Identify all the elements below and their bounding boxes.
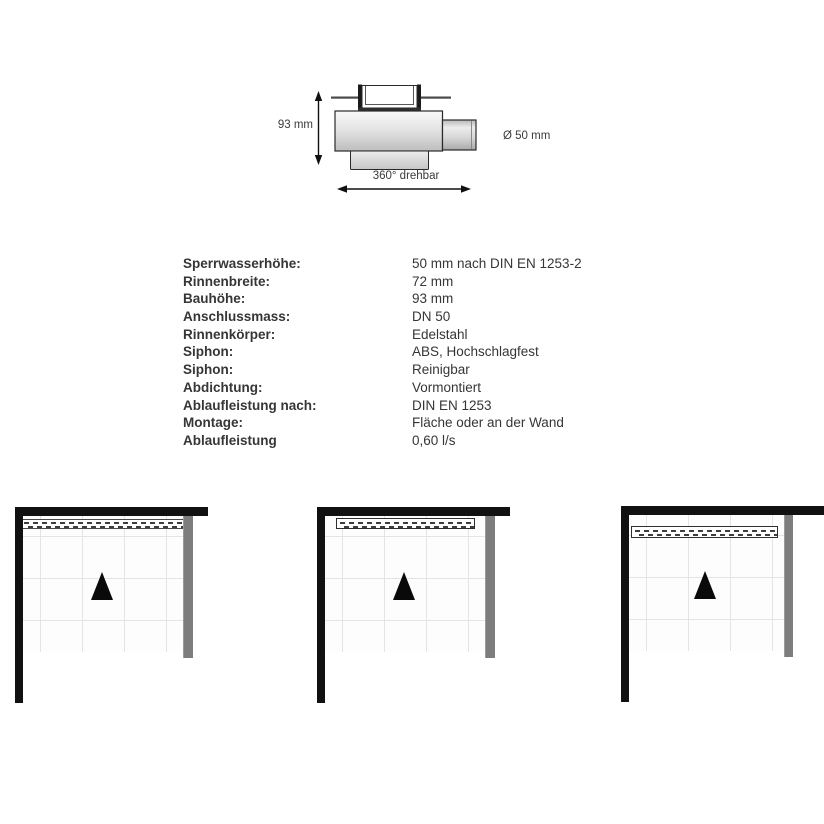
spec-value: Reinigbar	[412, 362, 470, 378]
slope-indicator-triangle	[91, 572, 113, 600]
spec-label: Anschlussmass:	[183, 309, 412, 325]
spec-table: Sperrwasserhöhe: 50 mm nach DIN EN 1253-…	[183, 256, 582, 451]
spec-row: Ablaufleistung nach: DIN EN 1253	[183, 398, 582, 416]
outlet-diameter-label: Ø 50 mm	[503, 130, 550, 142]
wall-left	[621, 506, 629, 702]
spec-value: ABS, Hochschlagfest	[412, 344, 539, 360]
spec-row: Rinnenkörper: Edelstahl	[183, 327, 582, 345]
product-spec-sheet: 93 mm Ø 50 mm 360° drehbar Sperrwasserhö…	[0, 0, 824, 824]
spec-value: DN 50	[412, 309, 450, 325]
spec-value: DIN EN 1253	[412, 398, 492, 414]
spec-label: Bauhöhe:	[183, 291, 412, 307]
spec-label: Rinnenbreite:	[183, 274, 412, 290]
spec-row: Siphon: ABS, Hochschlagfest	[183, 344, 582, 362]
wall-left	[15, 507, 23, 703]
wall-left	[317, 507, 325, 703]
spec-label: Ablaufleistung nach:	[183, 398, 412, 414]
spec-value: 72 mm	[412, 274, 453, 290]
height-dimension-label: 93 mm	[268, 119, 313, 131]
spec-label: Sperrwasserhöhe:	[183, 256, 412, 272]
spec-value: Edelstahl	[412, 327, 468, 343]
spec-value: 50 mm nach DIN EN 1253-2	[412, 256, 582, 272]
spec-row: Rinnenbreite: 72 mm	[183, 274, 582, 292]
glass-panel	[183, 516, 193, 658]
spec-label: Siphon:	[183, 362, 412, 378]
wall-top	[15, 507, 208, 516]
spec-row: Ablaufleistung 0,60 l/s	[183, 433, 582, 451]
spec-row: Sperrwasserhöhe: 50 mm nach DIN EN 1253-…	[183, 256, 582, 274]
drain-channel	[23, 519, 183, 529]
spec-row: Anschlussmass: DN 50	[183, 309, 582, 327]
slope-indicator-triangle	[393, 572, 415, 600]
spec-value: Vormontiert	[412, 380, 481, 396]
spec-label: Siphon:	[183, 344, 412, 360]
spec-row: Abdichtung: Vormontiert	[183, 380, 582, 398]
glass-panel	[485, 516, 495, 658]
wall-top	[317, 507, 510, 516]
spec-value: 0,60 l/s	[412, 433, 456, 449]
glass-panel	[784, 515, 793, 657]
rotation-range-label: 360° drehbar	[358, 170, 454, 182]
drain-channel	[631, 526, 778, 538]
spec-label: Montage:	[183, 415, 412, 431]
spec-label: Abdichtung:	[183, 380, 412, 396]
spec-row: Bauhöhe: 93 mm	[183, 291, 582, 309]
slope-indicator-triangle	[694, 571, 716, 599]
wall-top	[621, 506, 824, 515]
spec-value: 93 mm	[412, 291, 453, 307]
drain-channel	[336, 518, 475, 529]
spec-value: Fläche oder an der Wand	[412, 415, 564, 431]
spec-label: Rinnenkörper:	[183, 327, 412, 343]
spec-row: Montage: Fläche oder an der Wand	[183, 415, 582, 433]
spec-row: Siphon: Reinigbar	[183, 362, 582, 380]
technical-drawing: 93 mm Ø 50 mm 360° drehbar	[0, 0, 824, 230]
spec-label: Ablaufleistung	[183, 433, 412, 449]
